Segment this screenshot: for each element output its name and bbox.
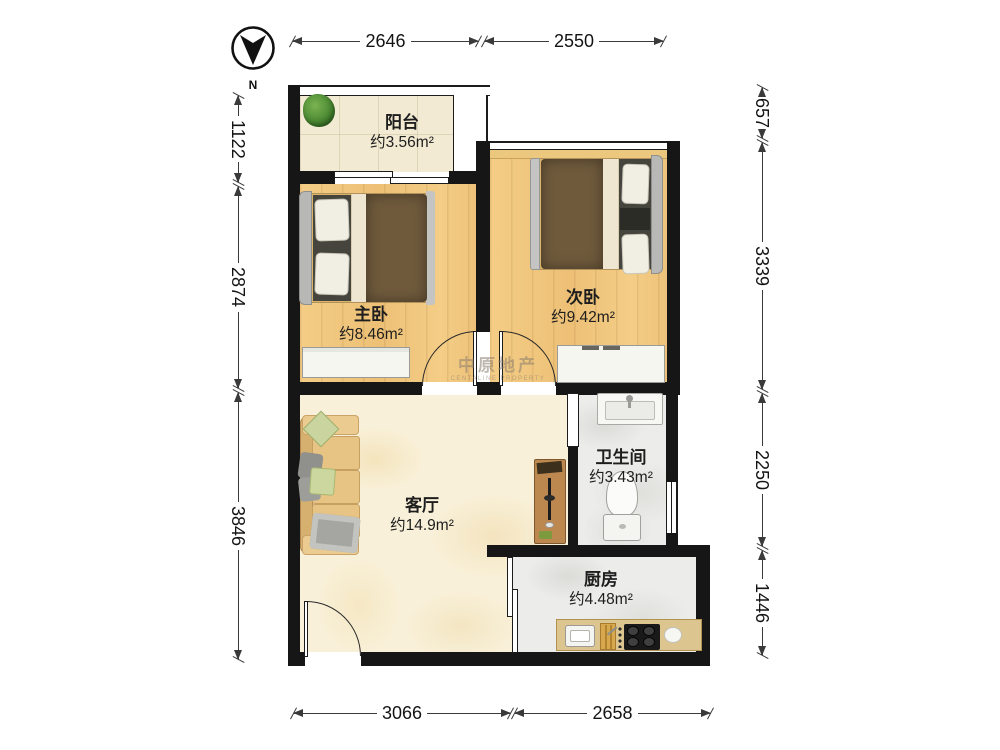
bathroom-sink: [597, 393, 663, 425]
second-bedroom-window: [490, 141, 667, 150]
dim-top-1: 2646: [292, 31, 479, 51]
dim-value: 2646: [360, 32, 410, 50]
wall-bathroom-left: [568, 447, 578, 545]
room-name: 卫生间: [589, 447, 653, 468]
dim-value: 657: [753, 94, 771, 132]
dim-right-2: 3339: [751, 142, 773, 390]
bed-headboard: [299, 191, 312, 305]
wall-master-bottom: [300, 382, 422, 395]
living-room-label: 客厅 约14.9m²: [390, 495, 454, 536]
room-name: 厨房: [569, 569, 633, 590]
plant-icon: [303, 94, 335, 127]
north-arrow-icon: [229, 24, 277, 72]
dim-left-1: 1122: [227, 95, 249, 183]
dresser-handle: [582, 346, 599, 350]
entry-door-leaf: [304, 601, 308, 657]
bathroom-door: [567, 393, 579, 447]
wall-living-bottom-right: [361, 652, 510, 666]
dim-line: [427, 713, 510, 714]
bed-footboard: [530, 158, 540, 270]
dim-line: [238, 96, 239, 115]
dim-value: 3339: [753, 242, 771, 290]
floor-plan: 阳台 约3.56m² 主卧 约8.46m² 次卧 约9.42m² 客厅 约14.…: [0, 0, 1000, 750]
dim-bottom-1: 3066: [293, 703, 511, 723]
second-bedroom-label: 次卧 约9.42m²: [551, 287, 615, 328]
dim-value: 2658: [587, 704, 637, 722]
stove-burner: [643, 637, 655, 647]
dim-line: [485, 41, 549, 42]
cabinet-green-item: [539, 531, 552, 539]
dim-line: [238, 550, 239, 659]
pillow: [314, 252, 349, 295]
dim-value: 2250: [753, 446, 771, 494]
bowl-icon: [664, 627, 682, 643]
master-bedroom-label: 主卧 约8.46m²: [339, 304, 403, 345]
bed-blanket: [541, 159, 603, 269]
dim-line: [238, 393, 239, 502]
second-bedroom-door-leaf: [499, 331, 503, 386]
bathroom-label: 卫生间 约3.43m²: [589, 447, 653, 488]
dim-line: [762, 290, 763, 389]
dim-value: 3066: [377, 704, 427, 722]
pillow: [621, 234, 649, 275]
wall-kitchen-bottom: [510, 652, 710, 666]
bed-cushion: [620, 208, 650, 230]
cutting-board: [600, 623, 616, 650]
sofa: [299, 415, 365, 555]
dim-top-2: 2550: [484, 31, 664, 51]
dim-line: [762, 143, 763, 242]
room-name: 客厅: [390, 495, 454, 516]
kitchen-sliding-door-panel: [512, 589, 518, 653]
second-bed: [530, 155, 663, 274]
balcony-label: 阳台 约3.56m²: [370, 112, 434, 153]
dim-line: [294, 713, 377, 714]
room-area: 约8.46m²: [339, 325, 403, 345]
dim-line: [638, 713, 710, 714]
dim-line: [762, 394, 763, 446]
stove-knobs: [618, 626, 622, 648]
wall-right-bedrooms: [667, 141, 680, 395]
wall-kitchen-top: [487, 545, 710, 557]
dim-line: [762, 627, 763, 655]
sink-basin: [570, 630, 590, 642]
master-bedroom-bench: [302, 347, 410, 378]
dim-line: [599, 41, 663, 42]
dresser-handle: [603, 346, 620, 350]
bed-footboard: [426, 191, 435, 305]
room-area: 约3.43m²: [589, 468, 653, 488]
compass-label: N: [228, 78, 278, 92]
dim-value: 1446: [753, 579, 771, 627]
kitchen-counter: [556, 619, 702, 651]
dim-right-3: 2250: [751, 393, 773, 547]
room-area: 约9.42m²: [551, 308, 615, 328]
dim-line: [515, 713, 587, 714]
dim-value: 2874: [229, 263, 247, 311]
room-area: 约4.48m²: [569, 590, 633, 610]
kitchen-sink: [565, 625, 595, 647]
cabinet-top: [537, 461, 563, 474]
cabinet-dot: [545, 522, 554, 528]
bed-headboard: [651, 155, 663, 274]
dim-line: [762, 494, 763, 546]
knife-icon: [607, 626, 617, 635]
stove-burner: [627, 626, 639, 636]
stove-burner: [643, 626, 655, 636]
kitchen-label: 厨房 约4.48m²: [569, 569, 633, 610]
sofa-pillow-green: [309, 467, 336, 496]
stove: [624, 624, 660, 650]
balcony-sliding-door-panel: [390, 177, 449, 184]
dim-line: [762, 88, 763, 94]
bed-blanket: [366, 194, 427, 302]
wall-left: [288, 85, 300, 666]
compass: N: [228, 24, 278, 92]
second-bedroom-dresser: [557, 345, 665, 383]
toilet-button: [619, 524, 626, 529]
faucet-spout: [628, 401, 631, 408]
dim-line: [238, 162, 239, 181]
cabinet-fridge: [534, 459, 566, 544]
dim-line: [411, 41, 478, 42]
dim-left-3: 3846: [227, 392, 249, 660]
room-name: 次卧: [551, 287, 615, 308]
dim-line: [293, 41, 360, 42]
dim-value: 3846: [229, 502, 247, 550]
wall-bathroom-right-upper: [666, 395, 678, 482]
bed-sheet: [603, 159, 619, 269]
wall-balcony-bottom-left: [300, 171, 335, 184]
stove-burner: [627, 637, 639, 647]
dim-line: [762, 551, 763, 579]
dim-value: 1122: [229, 116, 247, 163]
room-name: 阳台: [370, 112, 434, 133]
pillow: [621, 164, 649, 205]
room-area: 约3.56m²: [370, 133, 434, 153]
balcony-sliding-door-panel: [334, 171, 393, 178]
master-bed: [299, 189, 435, 307]
bed-sheet: [351, 194, 367, 302]
master-bedroom-door-leaf: [473, 331, 477, 386]
room-name: 主卧: [339, 304, 403, 325]
cabinet-knob: [544, 495, 555, 501]
bathroom-window: [666, 482, 678, 533]
board-line: [605, 625, 607, 649]
dim-value: 2550: [549, 32, 599, 50]
room-area: 约14.9m²: [390, 516, 454, 536]
pillow: [314, 198, 349, 241]
dim-right-4: 1446: [751, 550, 773, 656]
sofa-blanket: [309, 513, 361, 554]
dim-line: [238, 187, 239, 263]
dim-bottom-2: 2658: [514, 703, 711, 723]
wall-living-bottom-left: [288, 652, 305, 666]
dim-right-1: 657: [751, 87, 773, 139]
dim-left-2: 2874: [227, 186, 249, 389]
dim-line: [238, 312, 239, 388]
wall-between-bedrooms: [476, 141, 490, 332]
wall-door-stub: [477, 382, 501, 395]
